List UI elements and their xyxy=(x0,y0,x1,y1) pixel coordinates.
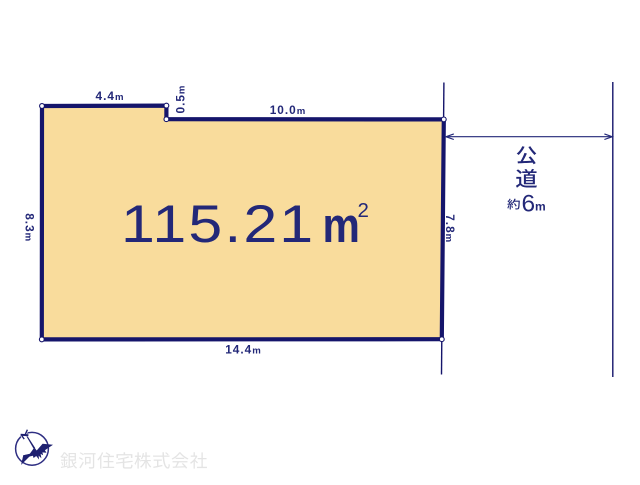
svg-text:10.0m: 10.0m xyxy=(270,103,307,117)
svg-text:m: m xyxy=(323,198,360,253)
svg-text:14.4m: 14.4m xyxy=(225,343,262,357)
svg-text:7.8m: 7.8m xyxy=(443,214,457,243)
svg-text:2: 2 xyxy=(358,199,369,222)
svg-text:8.3m: 8.3m xyxy=(23,213,37,242)
svg-text:115.21: 115.21 xyxy=(121,196,315,254)
svg-text:0.5m: 0.5m xyxy=(174,85,188,114)
svg-text:m: m xyxy=(535,200,546,214)
svg-text:6: 6 xyxy=(522,191,536,218)
svg-text:4.4m: 4.4m xyxy=(96,89,125,103)
